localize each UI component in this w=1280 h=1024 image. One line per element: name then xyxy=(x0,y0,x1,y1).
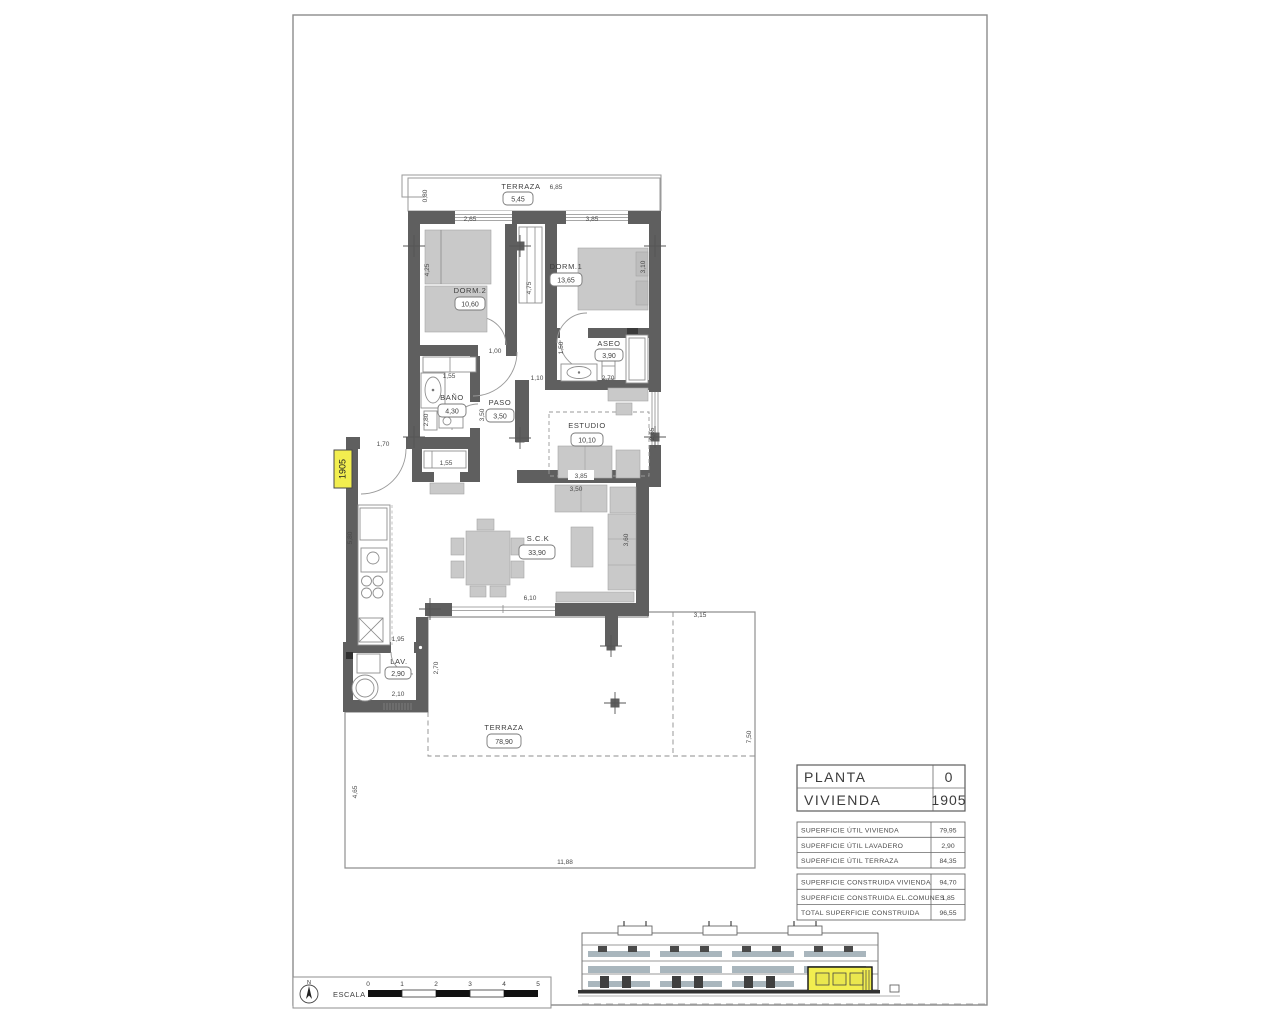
svg-text:3,15: 3,15 xyxy=(694,612,707,619)
svg-text:1,95: 1,95 xyxy=(392,636,405,643)
svg-text:0: 0 xyxy=(366,981,370,988)
living-sofa-long xyxy=(608,514,636,590)
coffee-table xyxy=(571,527,593,567)
roof-bulkhead xyxy=(788,926,822,935)
svg-text:1,55: 1,55 xyxy=(443,373,456,380)
bench xyxy=(430,483,464,494)
svg-text:3,90: 3,90 xyxy=(602,353,616,360)
svg-text:1,50: 1,50 xyxy=(558,341,565,354)
room-label-paso: PASO xyxy=(489,398,512,407)
svg-text:5,45: 5,45 xyxy=(511,197,525,204)
room-label-terraza: TERRAZA xyxy=(484,723,523,732)
svg-text:1,85: 1,85 xyxy=(941,895,954,902)
svg-text:5: 5 xyxy=(536,981,540,988)
svg-text:2,70: 2,70 xyxy=(602,375,615,382)
svg-text:84,35: 84,35 xyxy=(939,858,956,865)
dining-chair xyxy=(477,519,494,530)
svg-text:SUPERFICIE CONSTRUIDA EL.COMUN: SUPERFICIE CONSTRUIDA EL.COMUNES xyxy=(801,895,945,902)
svg-text:2,80: 2,80 xyxy=(423,413,430,426)
hob-burner xyxy=(362,576,372,586)
svg-text:0,80: 0,80 xyxy=(422,189,429,202)
svg-text:SUPERFICIE ÚTIL VIVIENDA: SUPERFICIE ÚTIL VIVIENDA xyxy=(801,826,899,835)
svg-text:2: 2 xyxy=(434,981,438,988)
svg-text:3,85: 3,85 xyxy=(586,216,599,223)
dining-chair xyxy=(490,586,506,597)
svg-text:94,70: 94,70 xyxy=(939,880,956,887)
vivienda-value: 1905 xyxy=(931,792,966,808)
svg-text:4,25: 4,25 xyxy=(424,263,431,276)
dining-table xyxy=(466,531,510,585)
svg-text:78,90: 78,90 xyxy=(495,739,513,746)
svg-text:3,50: 3,50 xyxy=(479,408,486,421)
svg-text:1,10: 1,10 xyxy=(531,375,544,382)
svg-text:SUPERFICIE ÚTIL TERRAZA: SUPERFICIE ÚTIL TERRAZA xyxy=(801,856,899,865)
room-label-dorm1: DORM.1 xyxy=(550,262,583,271)
svg-text:33,90: 33,90 xyxy=(528,550,546,557)
planta-label: PLANTA xyxy=(804,769,866,785)
svg-text:SUPERFICIE ÚTIL LAVADERO: SUPERFICIE ÚTIL LAVADERO xyxy=(801,841,903,850)
highlighted-unit xyxy=(808,967,872,992)
room-label-estudio: ESTUDIO xyxy=(568,421,606,430)
room-label-lav: LAV. xyxy=(390,657,407,666)
living-armchair xyxy=(610,487,636,513)
room-label-bano: BAÑO xyxy=(440,393,464,402)
svg-text:13,65: 13,65 xyxy=(557,278,575,285)
compass-north-label: N xyxy=(307,980,311,986)
svg-text:1: 1 xyxy=(400,981,404,988)
estudio-desk xyxy=(608,388,648,401)
architectural-sheet: 1905 TERRAZA 5,45 DORM.2 10,60 DORM.1 13… xyxy=(0,0,1280,1024)
svg-text:10,60: 10,60 xyxy=(461,302,479,309)
estudio-chair xyxy=(616,403,632,415)
unit-tag-number: 1905 xyxy=(337,459,347,479)
svg-text:10,10: 10,10 xyxy=(578,438,596,445)
svg-text:4,30: 4,30 xyxy=(445,409,459,416)
svg-text:1,55: 1,55 xyxy=(440,460,453,467)
living-slider-window xyxy=(452,604,555,615)
ground-line xyxy=(578,990,880,994)
vivienda-label: VIVIENDA xyxy=(804,792,881,808)
pillar-marker xyxy=(419,646,422,649)
svg-text:1,00: 1,00 xyxy=(489,348,502,355)
surface-construida-table: SUPERFICIE CONSTRUIDA VIVIENDA 94,70 SUP… xyxy=(797,874,965,920)
svg-text:4,75: 4,75 xyxy=(526,281,533,294)
scale-label: ESCALA : xyxy=(333,990,370,999)
lav-shelf xyxy=(357,654,380,673)
svg-text:3,85: 3,85 xyxy=(575,473,588,480)
svg-text:3,60: 3,60 xyxy=(623,533,630,546)
dining-chair xyxy=(511,561,524,578)
svg-text:3,50: 3,50 xyxy=(493,414,507,421)
svg-text:11,88: 11,88 xyxy=(557,859,573,866)
scale-bar: N ESCALA : 0 1 2 3 4 5 xyxy=(293,977,551,1008)
dining-chair xyxy=(470,586,486,597)
room-label-aseo: ASEO xyxy=(597,339,620,348)
roof-bulkhead xyxy=(703,926,737,935)
svg-text:1,70: 1,70 xyxy=(377,441,390,448)
svg-text:TOTAL SUPERFICIE CONSTRUIDA: TOTAL SUPERFICIE CONSTRUIDA xyxy=(801,910,920,917)
svg-text:2,65: 2,65 xyxy=(649,427,656,440)
dining-chair xyxy=(451,538,464,555)
svg-text:5,80: 5,80 xyxy=(347,531,354,544)
fridge xyxy=(360,508,387,540)
svg-text:6,10: 6,10 xyxy=(524,595,537,602)
svg-text:79,95: 79,95 xyxy=(939,828,956,835)
dining-chair xyxy=(451,561,464,578)
room-label-sck: S.C.K xyxy=(527,534,550,543)
estudio-armchair xyxy=(616,450,640,478)
svg-text:7,50: 7,50 xyxy=(746,730,753,743)
svg-text:2,10: 2,10 xyxy=(392,691,405,698)
unit-tag: 1905 xyxy=(334,450,352,488)
planta-value: 0 xyxy=(945,769,954,785)
svg-text:SUPERFICIE CONSTRUIDA VIVIENDA: SUPERFICIE CONSTRUIDA VIVIENDA xyxy=(801,880,931,887)
roof-bulkhead xyxy=(618,926,652,935)
svg-text:2,65: 2,65 xyxy=(464,216,477,223)
svg-text:2,90: 2,90 xyxy=(391,671,405,678)
svg-text:3,50: 3,50 xyxy=(570,486,583,493)
svg-text:6,85: 6,85 xyxy=(550,184,563,191)
bano-closet xyxy=(423,357,476,372)
tv-sideboard xyxy=(556,592,634,602)
scale-bar-segments xyxy=(368,990,538,997)
svg-text:4,65: 4,65 xyxy=(352,785,359,798)
svg-text:3: 3 xyxy=(468,981,472,988)
svg-text:3,10: 3,10 xyxy=(640,260,647,273)
room-label-dorm2: DORM.2 xyxy=(454,286,487,295)
svg-text:2,70: 2,70 xyxy=(433,661,440,674)
svg-text:2,90: 2,90 xyxy=(941,843,954,850)
vent-fan-icon xyxy=(627,328,638,334)
svg-text:96,55: 96,55 xyxy=(939,910,956,917)
svg-text:4: 4 xyxy=(502,981,506,988)
dorm2-bed xyxy=(425,230,491,284)
title-block: PLANTA 0 VIVIENDA 1905 SUPERFICIE ÚTIL V… xyxy=(797,765,967,920)
room-label-terraza-top: TERRAZA xyxy=(501,182,540,191)
